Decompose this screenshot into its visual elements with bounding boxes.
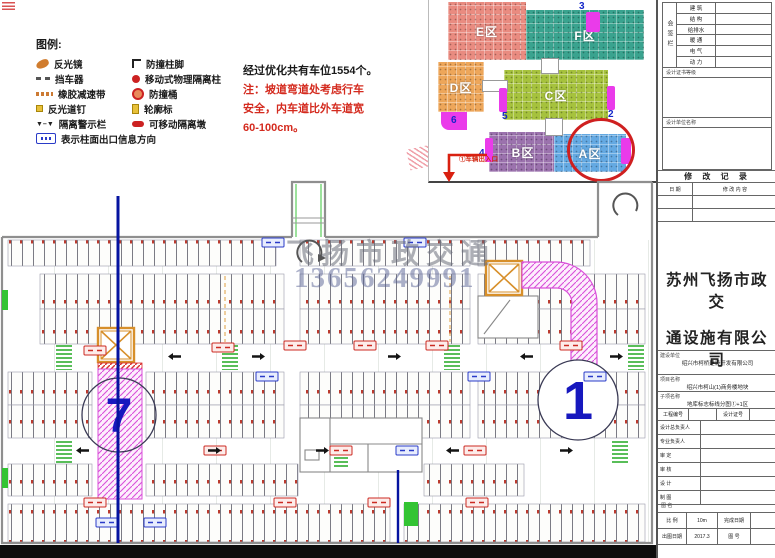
- entrance-label: ①车辆出入口: [459, 153, 498, 163]
- ramp-guide-lines: [296, 184, 321, 237]
- reflector-mirror-icon: [35, 57, 50, 69]
- zone-c: C区: [504, 70, 608, 120]
- zone-b-label: B区: [512, 144, 535, 161]
- speed-bump-icon: [36, 92, 53, 96]
- ramp-tab: [499, 88, 507, 112]
- drawing-sheet: 图例: 反光镜 防撞柱脚 挡车器 移动式物理隔离柱 橡胶减速带 防撞桶 反光道钉…: [0, 0, 775, 558]
- design-org-row: 设计单位名称: [662, 118, 772, 128]
- note-line: 安全，内车道比外车道宽: [243, 100, 439, 119]
- zone-connector: [541, 58, 559, 74]
- legend-panel: 图例: 反光镜 防撞柱脚 挡车器 移动式物理隔离柱 橡胶减速带 防撞桶 反光道钉…: [36, 36, 246, 146]
- numbers-grid: 工程编号 设计证号: [658, 409, 775, 421]
- legend-item: 橡胶减速带: [36, 87, 132, 101]
- optimization-note: 经过优化共有车位1554个。 注：坡道弯道处考虑行车 安全，内车道比外车道宽 6…: [243, 62, 439, 138]
- zone-c-label: C区: [545, 87, 568, 104]
- ramp-number-6: 6: [451, 115, 457, 126]
- revision-header: 修 改 记 录: [658, 170, 775, 183]
- signoff-rotated-label: 会签栏: [663, 3, 677, 67]
- bottom-bar: [0, 545, 657, 558]
- overview-map: E区 F区 D区 C区 B区 A区 3 6 5 2 4: [428, 0, 659, 183]
- ramp-tab: [586, 12, 600, 32]
- title-block: 会签栏 建 筑 结 构 给排水 暖 通 电 气 动 力 设计证书等级 设计单位名…: [656, 0, 775, 558]
- legend-item: 反光道钉: [36, 102, 132, 116]
- legend-title: 图例:: [36, 36, 246, 52]
- zone-b: B区: [489, 132, 557, 172]
- note-line: 注：坡道弯道处考虑行车: [243, 81, 439, 100]
- ramp-number-5: 5: [502, 111, 508, 122]
- revision-row: [658, 209, 775, 222]
- legend-item: 反光镜: [36, 57, 132, 71]
- design-org-box: [662, 128, 772, 170]
- exit-info-sign-icon: [36, 133, 56, 144]
- zone-connector: [545, 118, 563, 136]
- note-line: 经过优化共有车位1554个。: [243, 62, 439, 81]
- ramp-number-3: 3: [579, 1, 585, 12]
- client-row: 建设单位 绍兴市柯桥建设开发有限公司: [658, 350, 775, 375]
- role-rows: 设计总负责人 专业负责人 审 定 审 核 设 计 制 图: [658, 421, 775, 505]
- contour-marker-icon: [132, 104, 139, 114]
- tower-landing: [292, 218, 325, 223]
- subitem-row: 子项名称 地库标志标线分图①+1区: [658, 392, 775, 409]
- zone-e-label: E区: [476, 23, 498, 40]
- ramp-tab: [607, 86, 615, 110]
- entrance-arrow: [429, 146, 499, 182]
- corner-red-mark: [2, 1, 15, 10]
- signoff-table: 会签栏 建 筑 结 构 给排水 暖 通 电 气 动 力: [662, 2, 772, 68]
- isolation-column-icon: [132, 75, 140, 83]
- note-line: 60-100cm。: [243, 119, 439, 138]
- revision-row: [658, 196, 775, 209]
- revision-columns: 日 期 修 改 内 容: [658, 183, 775, 196]
- legend-item: 隔离警示栏: [36, 117, 132, 131]
- road-stud-icon: [36, 105, 43, 112]
- legend-item: 表示柱面出口信息方向: [36, 132, 272, 146]
- cert-box: [662, 78, 772, 118]
- legend-item: 挡车器: [36, 72, 132, 86]
- column-foot-icon: [132, 59, 141, 68]
- zone-d: D区: [438, 62, 484, 112]
- car-stopper-icon: [36, 77, 50, 80]
- legend-grid: 反光镜 防撞柱脚 挡车器 移动式物理隔离柱 橡胶减速带 防撞桶 反光道钉 轮廓标…: [36, 56, 246, 146]
- highlight-ellipse: [567, 118, 635, 182]
- zone-f: F区: [526, 10, 644, 60]
- drawing-name-row: 图 名: [658, 499, 775, 513]
- cert-row: 设计证书等级: [662, 68, 772, 78]
- project-row: 项目名称 绍兴市柯山(1)商务楼地块: [658, 375, 775, 392]
- company-name: 苏州飞扬市政交 通设施有限公司: [662, 224, 772, 350]
- parking-plan: 7 1: [0, 178, 658, 546]
- date-row: 出图日期 2017.3 图 号: [658, 529, 775, 545]
- zone-d-label: D区: [450, 79, 473, 96]
- warning-fence-icon: [36, 118, 54, 129]
- scale-row: 比 例 10m 完成日期: [658, 513, 775, 529]
- crash-barrel-icon: [132, 88, 144, 100]
- movable-pier-icon: [132, 121, 144, 127]
- zone-e: E区: [448, 2, 526, 60]
